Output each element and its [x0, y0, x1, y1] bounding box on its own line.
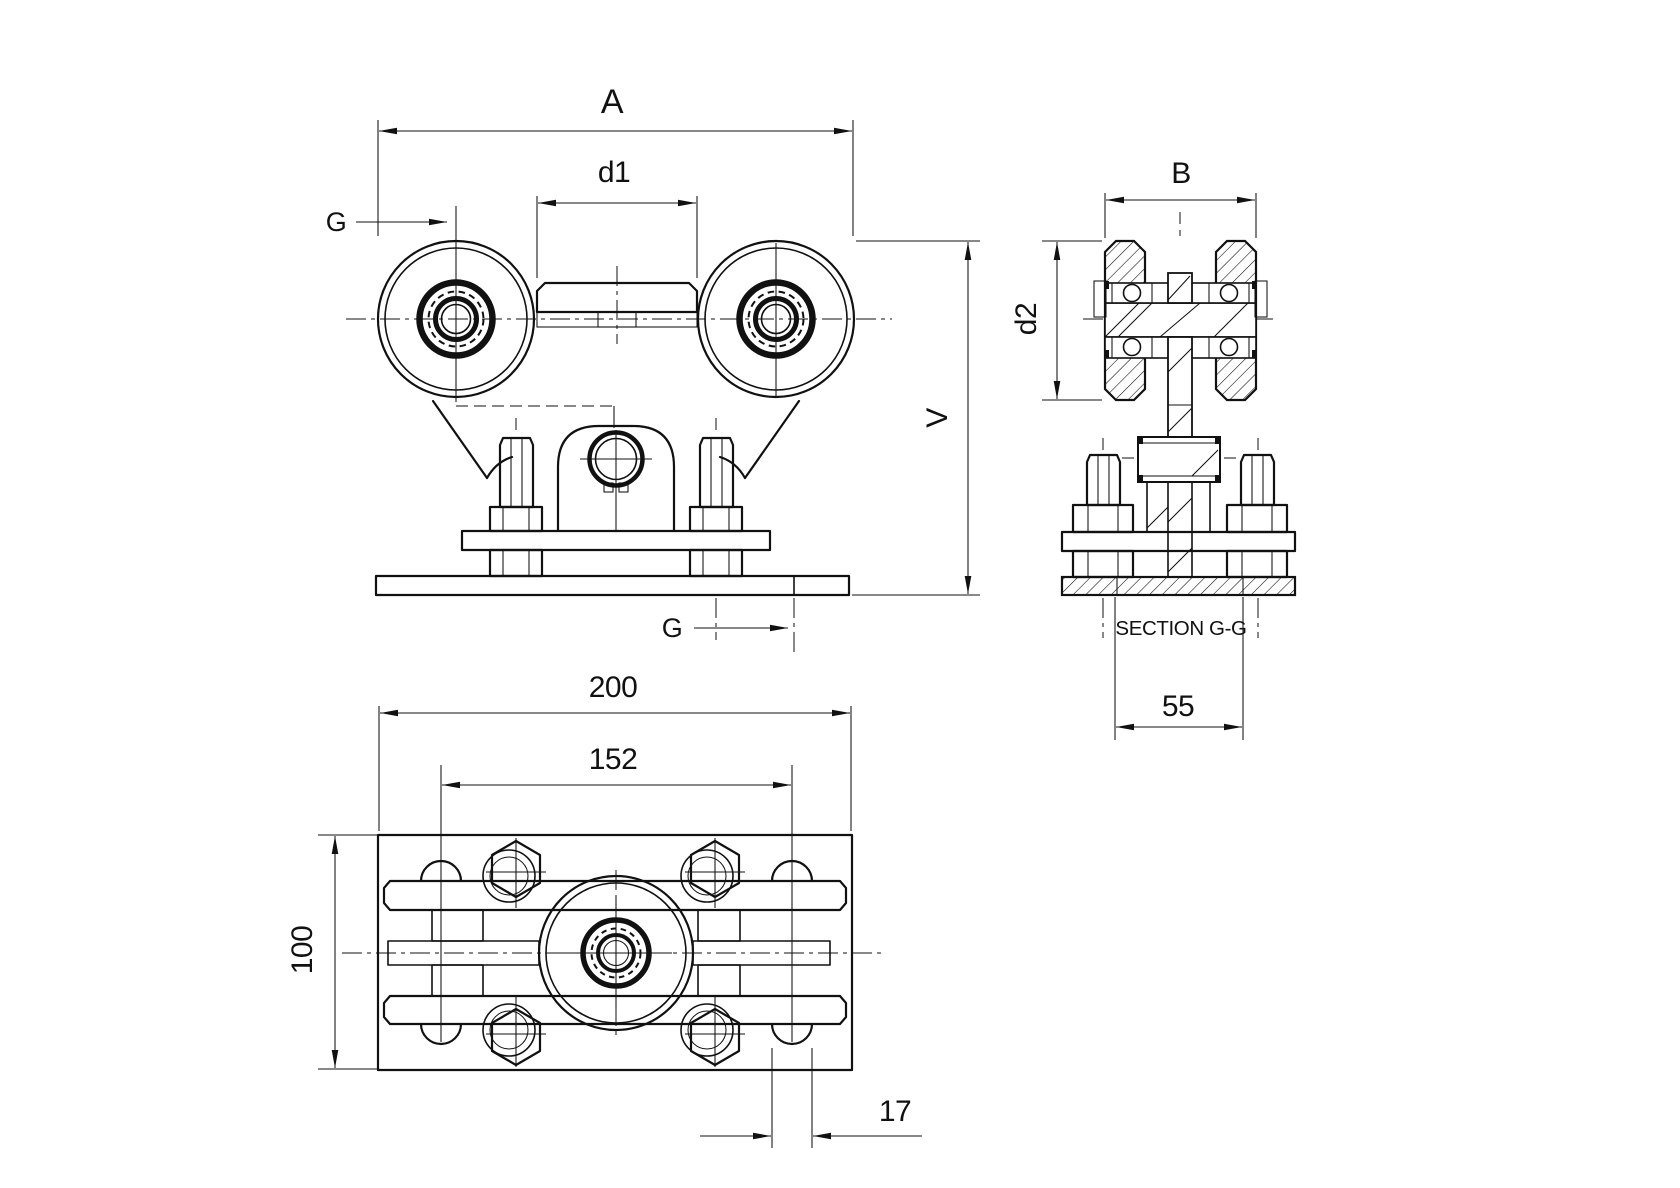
dim-label-200: 200 — [589, 671, 638, 704]
section-right-bolt — [1227, 438, 1287, 638]
left-bolt-lower-nut — [490, 550, 542, 576]
right-bolt-upper-nut — [690, 507, 742, 531]
dim-label-B: B — [1171, 157, 1191, 190]
plan-top-wheel-bar — [384, 881, 846, 910]
plan-view — [342, 835, 884, 1070]
section-label-G-bottom: G — [662, 613, 683, 643]
bearing-ball — [1124, 339, 1141, 356]
dim-label-55: 55 — [1162, 690, 1194, 723]
technical-drawing-canvas: A d1 G V G — [0, 0, 1680, 1188]
plan-stem — [432, 965, 483, 996]
bearing-ball — [1221, 285, 1238, 302]
stem-section — [1147, 482, 1210, 577]
shaft-section — [1168, 273, 1192, 437]
section-left-bolt — [1073, 438, 1133, 638]
dim-label-100: 100 — [286, 926, 319, 975]
plan-stem — [698, 965, 740, 996]
plan-stem — [432, 910, 483, 941]
right-bolt-lower-nut — [690, 550, 742, 576]
plan-stem — [698, 910, 740, 941]
dim-label-V: V — [921, 408, 954, 428]
right-bolt — [690, 418, 742, 640]
hub-axle-section — [1105, 303, 1256, 337]
dim-label-d2: d2 — [1010, 303, 1043, 335]
section-clamp-bar — [1062, 532, 1295, 551]
plan-nut-top-left — [483, 838, 546, 908]
plan-nut-bottom-right — [681, 997, 745, 1067]
dim-label-A: A — [601, 83, 624, 121]
bearing-ball — [1124, 285, 1141, 302]
section-view — [1062, 212, 1295, 638]
front-view-dimensions: A d1 G V G — [326, 83, 980, 652]
dim-label-d1: d1 — [598, 156, 630, 189]
left-bolt-upper-nut — [490, 507, 542, 531]
dim-label-17: 17 — [879, 1095, 911, 1128]
plan-bottom-wheel-bar — [384, 996, 846, 1024]
hub-boss-section — [1122, 437, 1236, 482]
plan-nut-top-right — [681, 838, 745, 908]
drawing-sheet: A d1 G V G — [0, 0, 1680, 1188]
clamp-bar — [462, 531, 770, 550]
bearing-ball — [1221, 339, 1238, 356]
dim-label-152: 152 — [589, 743, 638, 776]
section-base-plate — [1062, 577, 1295, 595]
plan-central-boss — [539, 876, 693, 1030]
plan-nut-bottom-left — [483, 997, 546, 1067]
base-plate — [376, 576, 849, 595]
section-label-G-top: G — [326, 207, 347, 237]
carriage-body — [433, 401, 799, 531]
left-bolt — [490, 418, 542, 576]
section-title: SECTION G-G — [1115, 617, 1246, 640]
front-view — [346, 206, 892, 640]
